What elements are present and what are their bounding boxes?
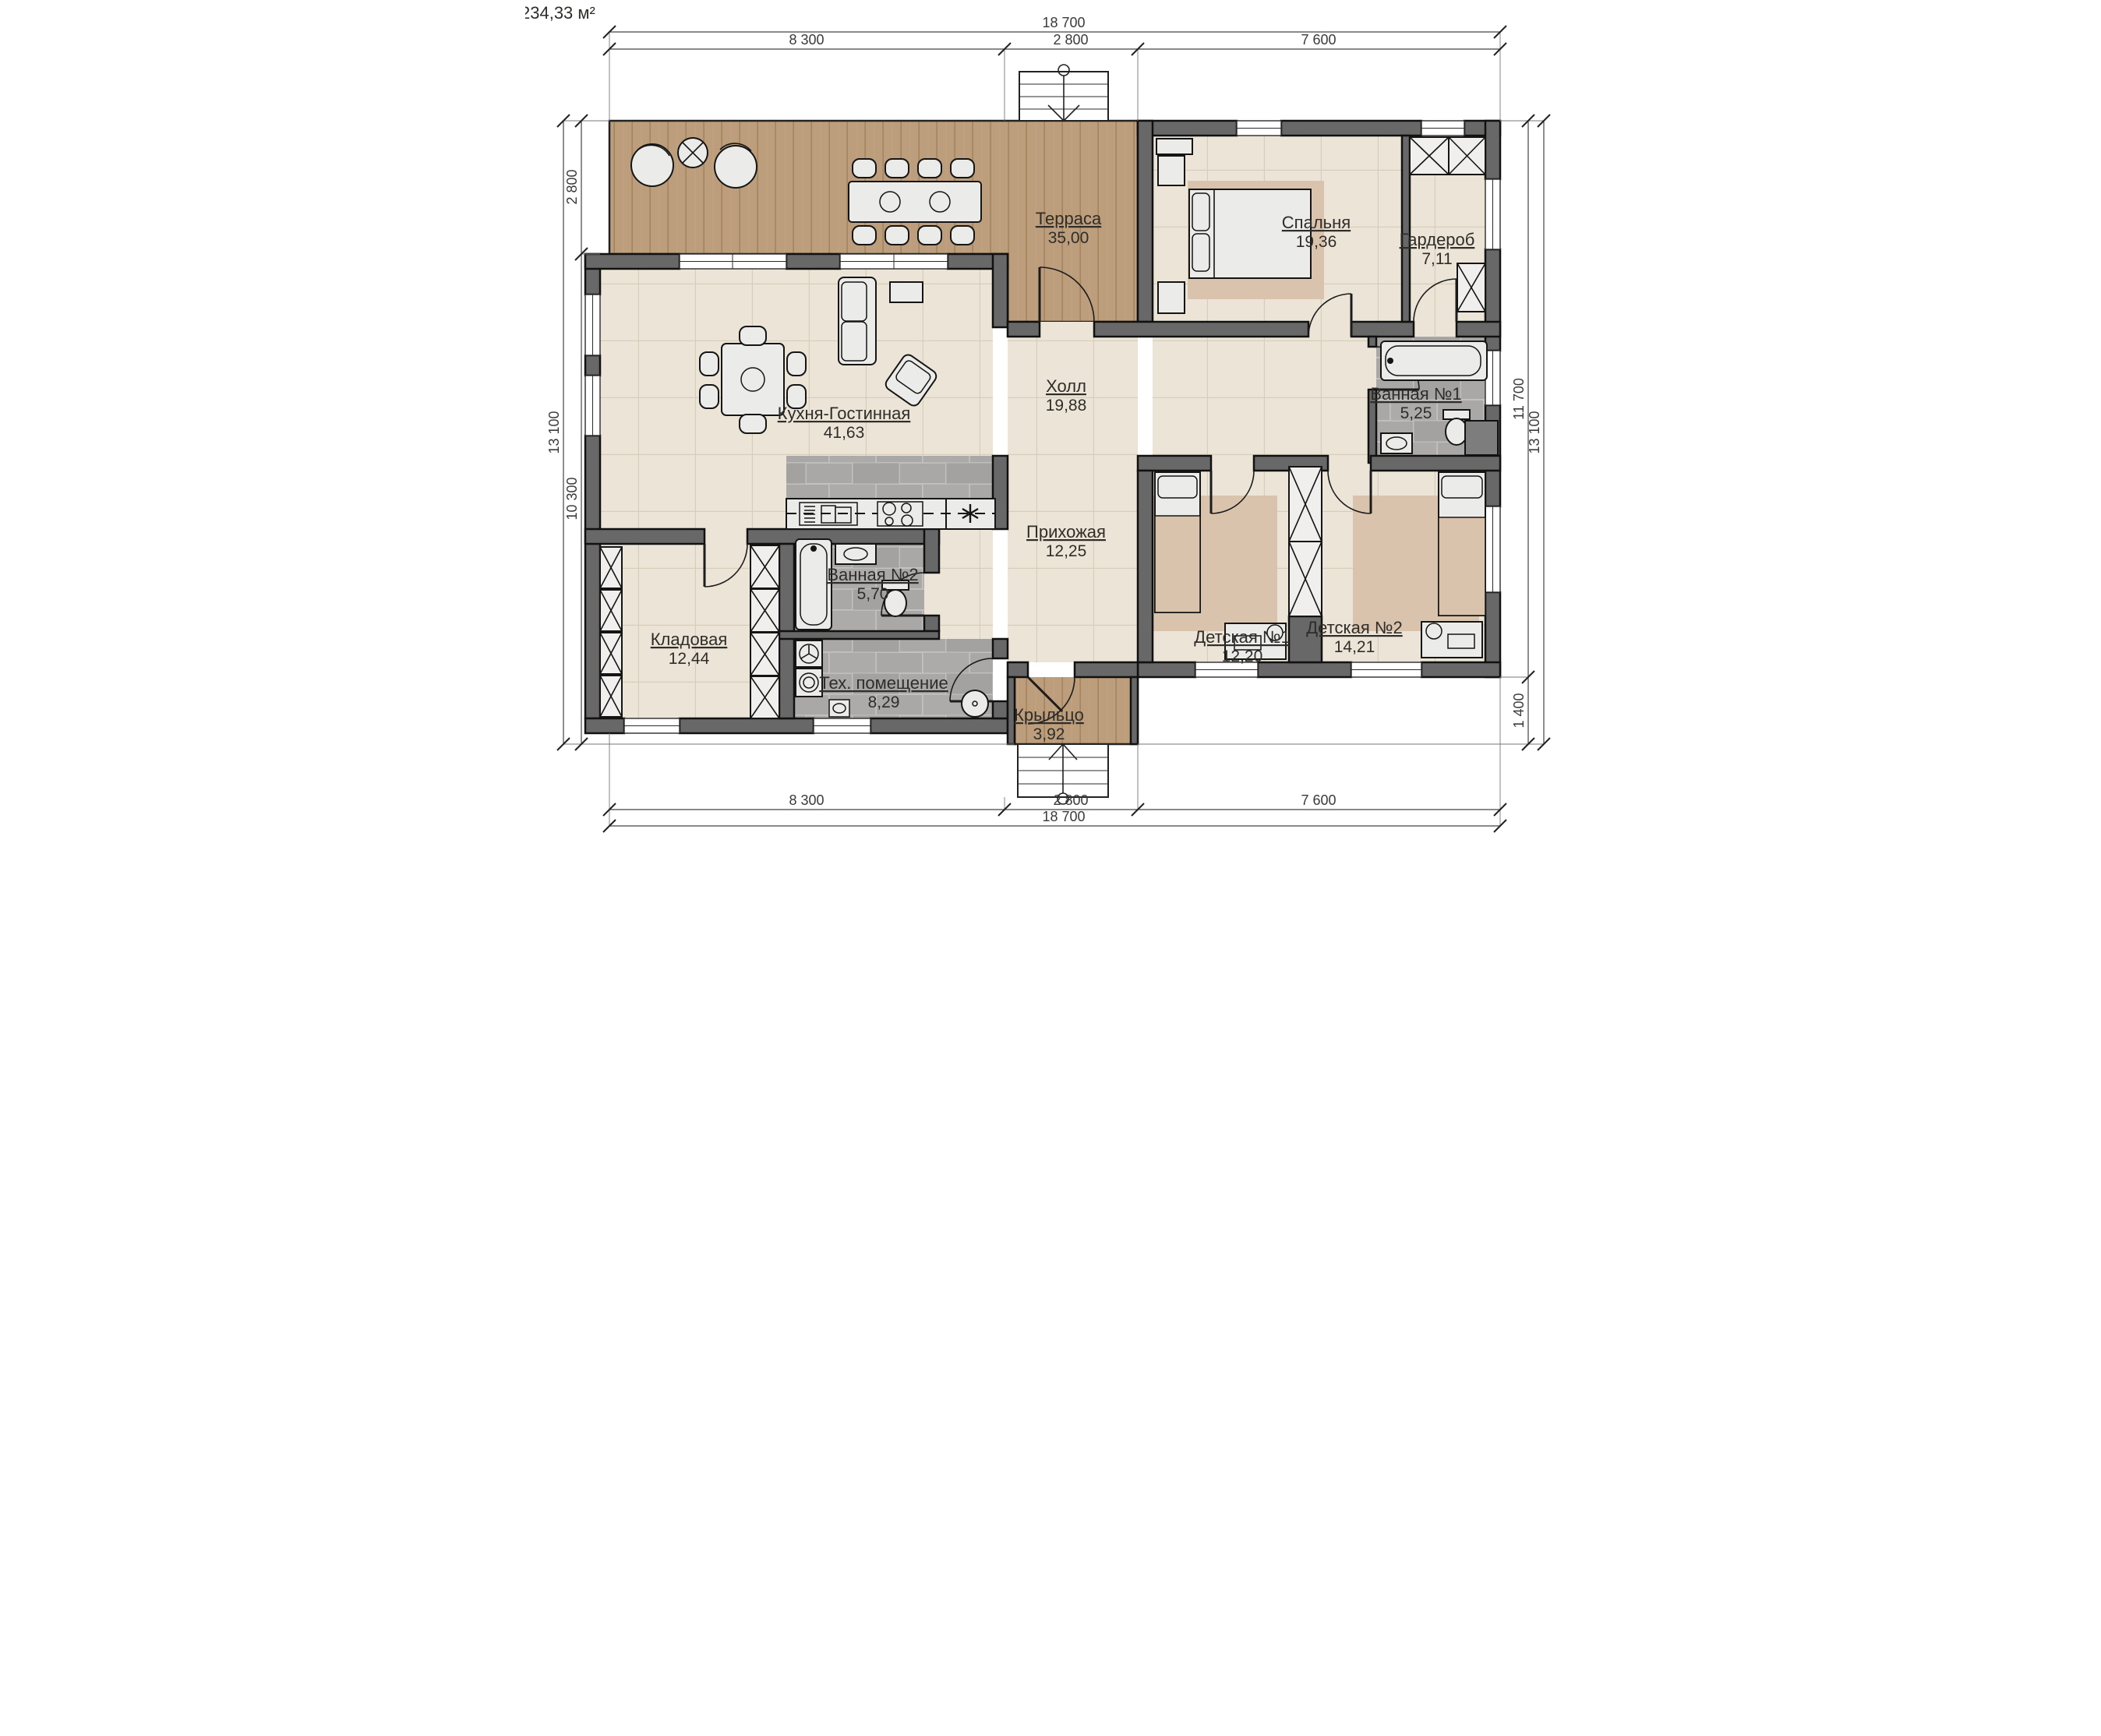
label-hall: Холл19,88 [1046, 376, 1087, 415]
total-area-label: 234,33 м² [525, 3, 595, 23]
shower-tray-icon [1465, 421, 1498, 455]
sofa-icon [839, 277, 876, 365]
dim-top-left: 8 300 [789, 32, 824, 48]
bed-double-icon [1189, 189, 1311, 278]
sink-icon [835, 544, 876, 564]
dim-bottom-left: 8 300 [789, 792, 824, 808]
floor-plan-page: Терраса35,00 Спальня19,36 Гардероб7,11 Х… [525, 0, 1576, 868]
window-icon [1485, 506, 1500, 592]
desk-icon [1421, 622, 1482, 658]
window-icon [585, 295, 600, 355]
dim-bottom-total: 18 700 [1042, 809, 1085, 824]
dim-right-total: 13 100 [1527, 411, 1542, 453]
dim-bottom-mid: 2 800 [1053, 792, 1088, 808]
dim-right-upper: 11 700 [1511, 378, 1527, 420]
nightstand-icon [1158, 282, 1185, 313]
dim-top-mid: 2 800 [1053, 32, 1088, 48]
washing-machine-icon [796, 640, 822, 667]
dresser-icon [1156, 139, 1192, 154]
window-icon [840, 254, 948, 269]
nightstand-icon [1158, 156, 1185, 185]
kids-wardrobe-icon [1289, 467, 1322, 616]
window-icon [1237, 121, 1281, 136]
sink-icon [1381, 433, 1412, 453]
window-icon [1485, 179, 1500, 249]
tv-unit-icon [890, 282, 923, 302]
dim-left-lower: 10 300 [564, 477, 580, 520]
window-icon [585, 376, 600, 436]
window-icon [1421, 121, 1464, 136]
patio-table-icon [678, 138, 708, 168]
bathtub-icon [796, 539, 832, 630]
dim-top-right: 7 600 [1301, 32, 1336, 48]
kitchen-counter-icon [786, 499, 995, 529]
bathtub-icon [1381, 341, 1487, 380]
kitchen-zone-floor [786, 456, 995, 499]
floor-plan-drawing: Терраса35,00 Спальня19,36 Гардероб7,11 Х… [525, 0, 1576, 868]
bed-single-icon [1155, 472, 1200, 612]
lounge-chair-icon [631, 144, 673, 186]
window-icon [814, 718, 870, 733]
floor-drain-icon [829, 700, 849, 717]
dim-right-lower: 1 400 [1511, 693, 1527, 728]
dim-left-upper: 2 800 [564, 169, 580, 204]
stairs-top [1019, 65, 1108, 121]
dryer-icon [796, 669, 822, 697]
window-icon [680, 254, 786, 269]
window-icon [624, 718, 680, 733]
dim-bottom-right: 7 600 [1301, 792, 1336, 808]
boiler-icon [962, 690, 988, 717]
bed-single-icon [1439, 472, 1485, 616]
hall-column-floor [1008, 322, 1138, 662]
dim-top-total: 18 700 [1042, 15, 1085, 30]
window-icon [1351, 662, 1421, 677]
dim-left-total: 13 100 [546, 411, 562, 453]
